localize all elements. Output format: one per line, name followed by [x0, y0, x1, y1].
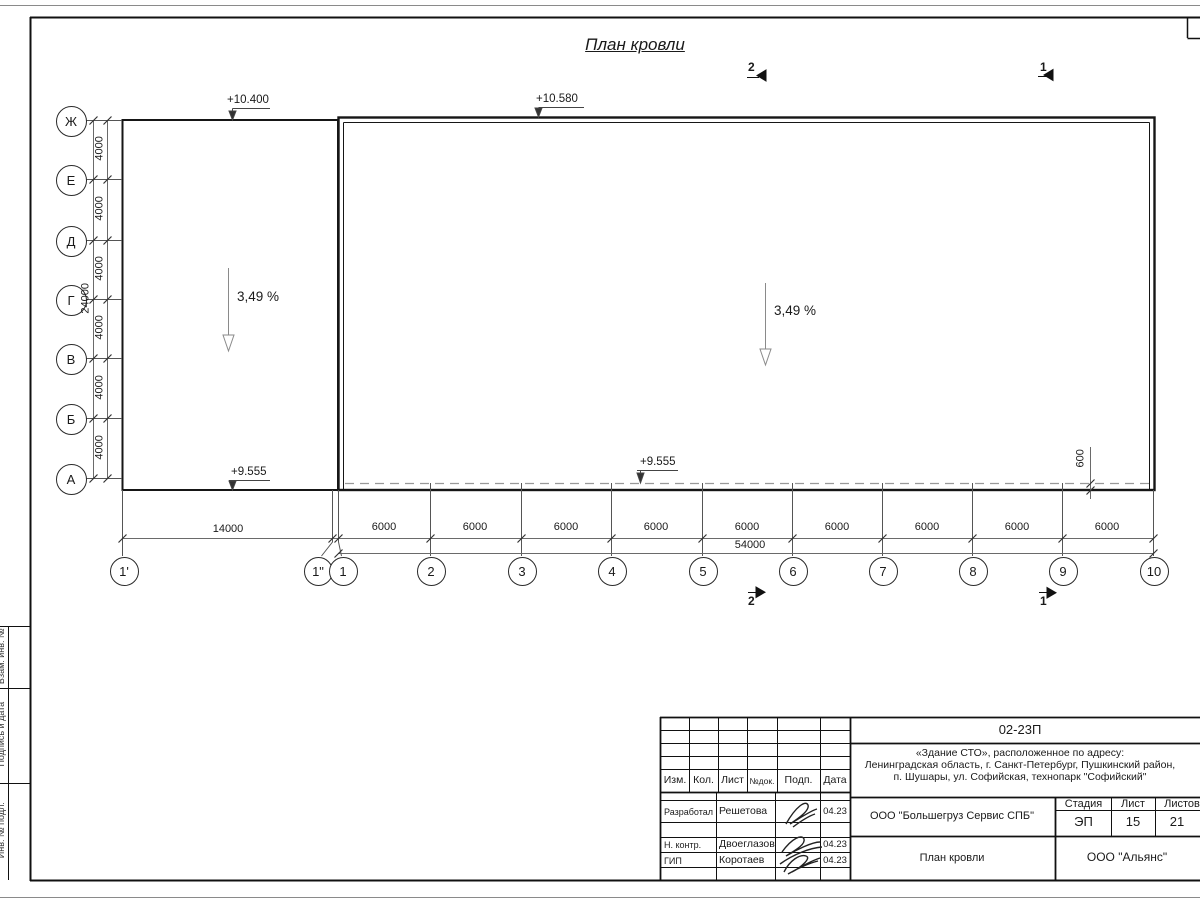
doc-number: 02-23П — [850, 723, 1190, 738]
frame-label-podpis: Подпись и дата — [0, 699, 6, 769]
dim-4000: 4000 — [94, 190, 107, 226]
tb-stage-label: Стадия — [1056, 798, 1111, 811]
section-marker-bottom-right: 1 — [1040, 595, 1047, 609]
axis-label: 2 — [427, 564, 434, 579]
dim-6000: 6000 — [722, 521, 772, 534]
dim-6000: 6000 — [992, 521, 1042, 534]
axis-label: 1" — [312, 564, 324, 579]
dim-6000: 6000 — [1082, 521, 1132, 534]
slope-label-left: 3,49 % — [237, 289, 279, 305]
axis-circle-row-v: В — [56, 344, 87, 375]
dim-4000: 4000 — [94, 309, 107, 345]
tb-company: ООО "Большегруз Сервис СПБ" — [852, 810, 1052, 823]
frame-label-vzam: Взам. инв. № — [0, 621, 6, 691]
tb-stage-value: ЭП — [1056, 815, 1111, 830]
axis-circle-col-10: 10 — [1140, 557, 1169, 586]
tb-org: ООО "Альянс" — [1057, 851, 1197, 865]
axis-label: А — [67, 472, 76, 487]
elevation-marks — [229, 108, 678, 491]
dim-24000: 24000 — [80, 276, 93, 320]
elevation-label-right-top: +10.580 — [536, 93, 578, 106]
dim-6000: 6000 — [450, 521, 500, 534]
axis-label: 10 — [1147, 564, 1161, 579]
tb-col-data: Дата — [820, 774, 850, 786]
axis-circle-row-b: Б — [56, 404, 87, 435]
tb-role-gip: ГИП — [664, 856, 682, 866]
section-marker-top-left: 2 — [748, 61, 755, 75]
address-line-1: «Здание СТО», расположенное по адресу: — [852, 747, 1188, 759]
dim-4000: 4000 — [94, 250, 107, 286]
dim-6000: 6000 — [902, 521, 952, 534]
axis-label: В — [67, 352, 76, 367]
slope-arrows — [223, 268, 771, 365]
axis-label: 7 — [879, 564, 886, 579]
elevation-arrow — [535, 108, 542, 117]
axis-circle-col-4: 4 — [598, 557, 627, 586]
project-address: «Здание СТО», расположенное по адресу: Л… — [852, 747, 1188, 783]
dim-4000: 4000 — [94, 429, 107, 465]
axis-circle-col-1p: 1' — [110, 557, 139, 586]
dim-4000: 4000 — [94, 369, 107, 405]
tb-col-izm: Изм. — [661, 774, 689, 786]
dim-6000: 6000 — [631, 521, 681, 534]
section-marker-top-right: 1 — [1040, 61, 1047, 75]
axis-label: 5 — [699, 564, 706, 579]
tb-sheet-title: План кровли — [852, 852, 1052, 865]
axis-label: Г — [67, 293, 74, 308]
dim-6000: 6000 — [541, 521, 591, 534]
drawing-sheet: План кровли +10.400 +10.580 +9.555 +9.55… — [0, 0, 1200, 900]
tb-name-dvoeglazov: Двоеглазов — [719, 838, 775, 850]
tb-sheet-label: Лист — [1111, 798, 1155, 811]
axis-circle-col-2: 2 — [417, 557, 446, 586]
tb-sheets-value: 21 — [1155, 815, 1199, 830]
tb-col-podp: Подп. — [777, 774, 820, 786]
right-building-outline — [339, 118, 1155, 491]
tb-sheet-value: 15 — [1111, 815, 1155, 830]
tb-name-reshetova: Решетова — [719, 805, 767, 817]
elevation-arrow — [637, 473, 644, 483]
axis-label: 4 — [608, 564, 615, 579]
dim-6000: 6000 — [359, 521, 409, 534]
drawing-title: План кровли — [560, 35, 710, 55]
axis-label: 3 — [518, 564, 525, 579]
axis-label: Д — [67, 234, 76, 249]
axis-circle-col-6: 6 — [779, 557, 808, 586]
axis-circle-col-1: 1 — [329, 557, 358, 586]
address-line-3: п. Шушары, ул. Софийская, технопарк "Соф… — [852, 771, 1188, 783]
dim-14000: 14000 — [203, 523, 253, 536]
tb-col-ndok: №док. — [747, 777, 777, 787]
axis-label: 8 — [969, 564, 976, 579]
section-cut-arrows — [747, 70, 1056, 599]
frame-label-inv: Инв. № подл. — [0, 795, 6, 865]
axis-circle-row-zh: Ж — [56, 106, 87, 137]
tb-name-korotaev: Коротаев — [719, 854, 764, 866]
right-building-parapet-inner — [344, 123, 1150, 491]
axis-label: 6 — [789, 564, 796, 579]
axis-label: 1' — [119, 564, 129, 579]
slope-arrowhead — [223, 335, 234, 351]
axis-label: 9 — [1059, 564, 1066, 579]
dim-600: 600 — [1075, 443, 1088, 473]
elevation-arrow — [229, 481, 236, 490]
axis-circle-col-7: 7 — [869, 557, 898, 586]
dim-54000: 54000 — [725, 539, 775, 552]
elevation-label-left-bottom: +9.555 — [231, 466, 267, 479]
address-line-2: Ленинградская область, г. Санкт-Петербур… — [852, 759, 1188, 771]
axis-circle-col-3: 3 — [508, 557, 537, 586]
axis-circle-row-e: Е — [56, 165, 87, 196]
dim-6000: 6000 — [812, 521, 862, 534]
axis-circle-row-a: А — [56, 464, 87, 495]
elevation-label-mid-bottom: +9.555 — [640, 456, 676, 469]
tb-date-2: 04.23 — [820, 840, 850, 851]
slope-arrowhead — [760, 349, 771, 365]
tb-col-list: Лист — [718, 774, 747, 786]
dim-4000: 4000 — [94, 130, 107, 166]
axis-circle-col-5: 5 — [689, 557, 718, 586]
dimension-lines — [94, 120, 1155, 554]
tb-role-nkontr: Н. контр. — [664, 840, 701, 850]
dimension-ticks — [90, 117, 1158, 558]
section-marker-bottom-left: 2 — [748, 595, 755, 609]
tb-date-3: 04.23 — [820, 856, 850, 867]
axis-label: 1 — [339, 564, 346, 579]
signatures — [780, 803, 822, 874]
slope-label-right: 3,49 % — [774, 303, 816, 319]
axis-circle-col-9: 9 — [1049, 557, 1078, 586]
axis-label: Б — [67, 412, 76, 427]
elevation-arrow — [229, 111, 236, 120]
tb-date-1: 04.23 — [820, 807, 850, 818]
axis-label: Ж — [65, 114, 77, 129]
axis-circle-col-8: 8 — [959, 557, 988, 586]
axis-label: Е — [67, 173, 76, 188]
tb-sheets-label: Листов — [1156, 798, 1200, 811]
tb-col-kol: Кол. — [689, 774, 718, 786]
elevation-label-left-top: +10.400 — [227, 94, 269, 107]
axis-circle-row-d: Д — [56, 226, 87, 257]
signature-reshetova — [786, 803, 817, 827]
tb-role-razrabotal: Разработал — [664, 807, 713, 817]
left-building-outline — [123, 120, 339, 490]
